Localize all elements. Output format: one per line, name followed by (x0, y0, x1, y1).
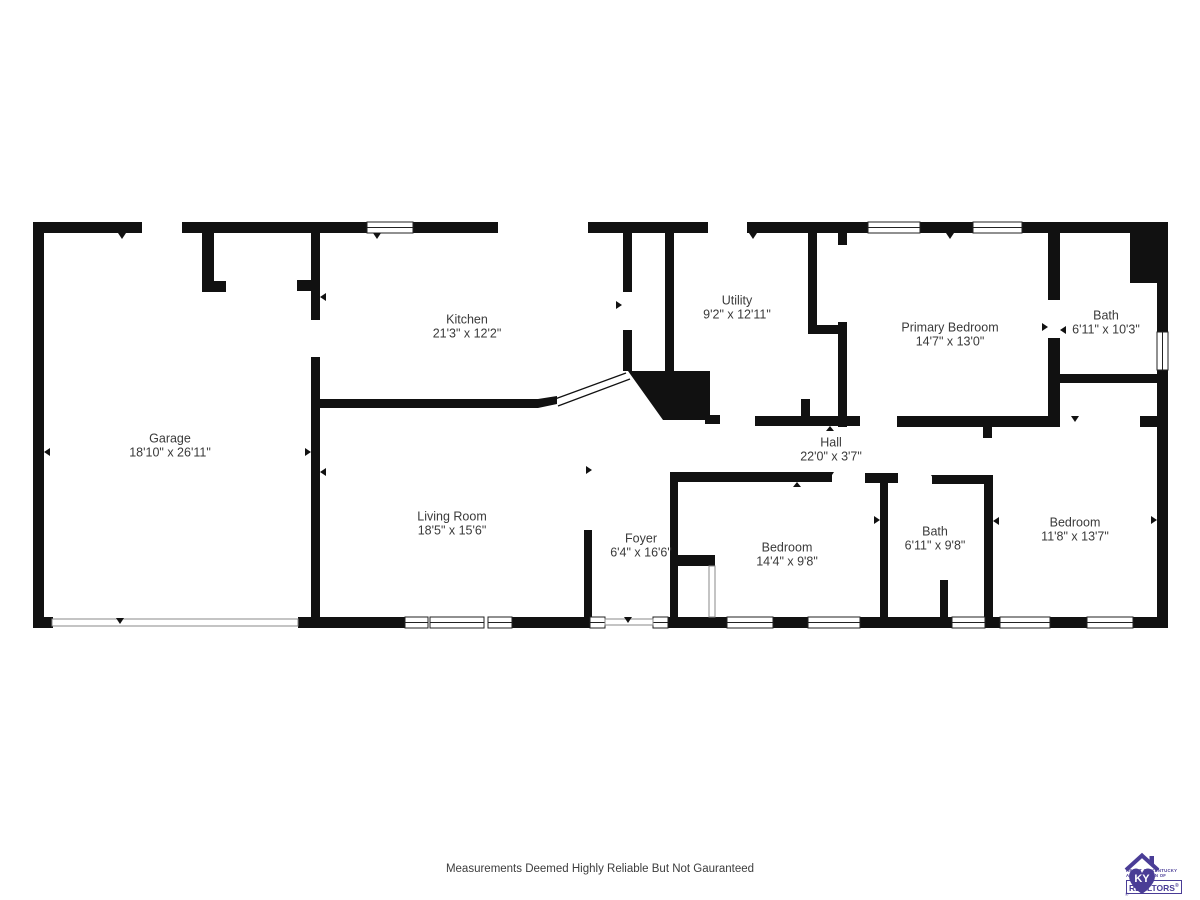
room-name: Garage (129, 433, 211, 447)
room-dims: 18'5" x 15'6" (417, 524, 486, 538)
hall-top-wall (755, 416, 860, 426)
window (367, 222, 413, 233)
room-name: Foyer (610, 533, 672, 547)
bath-primary-wall (1060, 374, 1158, 383)
room-name: Bedroom (756, 542, 818, 556)
room-label-kitchen: Kitchen 21'3" x 12'2" (433, 314, 502, 341)
room-name: Bath (1072, 310, 1140, 324)
toilet-partition (940, 580, 948, 617)
window (488, 617, 512, 628)
room-label-hall: Hall 22'0" x 3'7" (800, 437, 862, 464)
room-name: Kitchen (433, 314, 502, 328)
stairs (555, 371, 710, 420)
ky-monogram: KY (1134, 873, 1150, 885)
room-dims: 14'7" x 13'0" (901, 335, 998, 349)
kitchen-bottom-wall (320, 399, 538, 408)
ky-house-heart-icon: KY ® (1124, 851, 1160, 897)
room-label-living-room: Living Room 18'5" x 15'6" (417, 511, 486, 538)
window (405, 617, 428, 628)
room-dims: 6'11" x 9'8" (905, 539, 966, 553)
room-name: Living Room (417, 511, 486, 525)
room-label-bedroom-right: Bedroom 11'8" x 13'7" (1041, 517, 1109, 544)
room-dims: 21'3" x 12'2" (433, 327, 502, 341)
bedroom-top-wall (670, 472, 832, 482)
room-label-bedroom-middle: Bedroom 14'4" x 9'8" (756, 542, 818, 569)
room-dims: 11'8" x 13'7" (1041, 530, 1109, 544)
stair-block (628, 371, 710, 420)
room-dims: 18'10" x 26'11" (129, 446, 211, 460)
room-name: Hall (800, 437, 862, 451)
room-label-bath-hall: Bath 6'11" x 9'8" (905, 526, 966, 553)
window (653, 617, 668, 628)
foyer-wall (584, 530, 592, 618)
garage-door (52, 619, 298, 626)
room-label-garage: Garage 18'10" x 26'11" (129, 433, 211, 460)
disclaimer-text: Measurements Deemed Highly Reliable But … (446, 863, 754, 875)
room-dims: 14'4" x 9'8" (756, 555, 818, 569)
window (808, 617, 860, 628)
window (1157, 332, 1168, 370)
room-label-primary-bedroom: Primary Bedroom 14'7" x 13'0" (901, 322, 998, 349)
closet-door (709, 566, 715, 617)
window (1000, 617, 1050, 628)
room-label-bath-primary: Bath 6'11" x 10'3" (1072, 310, 1140, 337)
registered-mark: ® (1125, 891, 1129, 897)
window (952, 617, 985, 628)
window (1087, 617, 1133, 628)
room-label-foyer: Foyer 6'4" x 16'6" (610, 533, 672, 560)
room-dims: 6'11" x 10'3" (1072, 323, 1140, 337)
room-name: Primary Bedroom (901, 322, 998, 336)
floor-plan: Garage 18'10" x 26'11" Kitchen 21'3" x 1… (0, 0, 1200, 900)
room-dims: 6'4" x 16'6" (610, 546, 672, 560)
window (868, 222, 920, 233)
foyer-closet-wall (678, 555, 715, 566)
brokerage-logo: KY ® HEART OF KENTUCKY ASSOCIATION OF RE… (1124, 851, 1200, 899)
window (973, 222, 1022, 233)
room-name: Bedroom (1041, 517, 1109, 531)
room-label-utility: Utility 9'2" x 12'11" (703, 295, 771, 322)
room-dims: 22'0" x 3'7" (800, 450, 862, 464)
room-name: Bath (905, 526, 966, 540)
window (430, 617, 484, 628)
window (727, 617, 773, 628)
room-name: Utility (703, 295, 771, 309)
window (590, 617, 605, 628)
room-dims: 9'2" x 12'11" (703, 308, 771, 322)
realtors-registered: ® (1175, 883, 1179, 889)
